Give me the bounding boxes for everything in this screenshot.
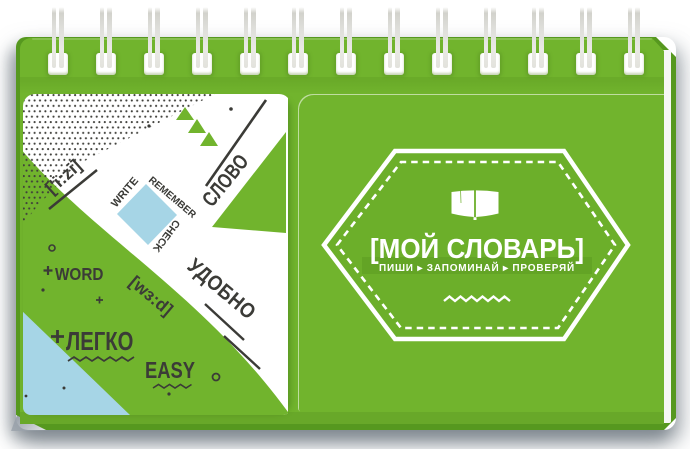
svg-text:WORD: WORD (55, 264, 103, 284)
svg-text:[МОЙ СЛОВАРЬ]: [МОЙ СЛОВАРЬ] (370, 232, 584, 264)
svg-text:EASY: EASY (145, 358, 195, 383)
svg-text:ЛЕГКО: ЛЕГКО (66, 327, 133, 356)
svg-text:ПИШИ ▸ ЗАПОМИНАЙ ▸ ПРОВЕРЯЙ: ПИШИ ▸ ЗАПОМИНАЙ ▸ ПРОВЕРЯЙ (379, 261, 575, 274)
